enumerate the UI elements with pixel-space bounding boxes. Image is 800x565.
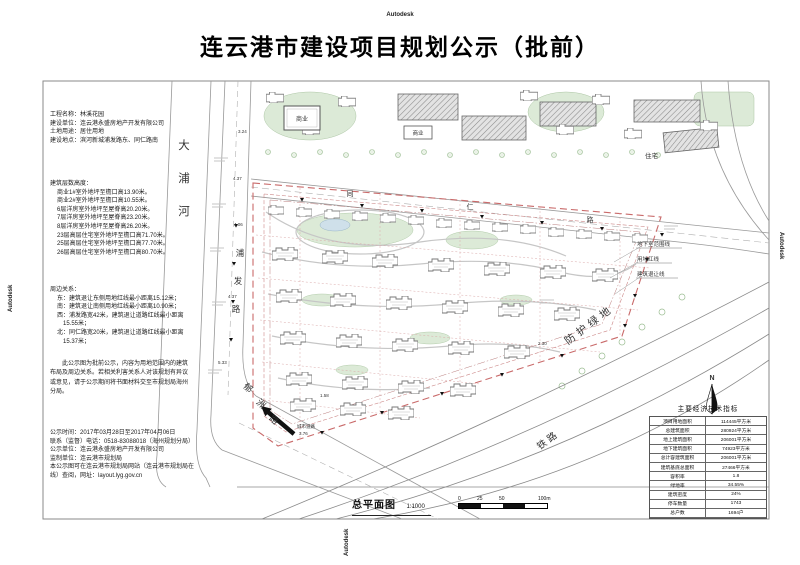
north-label: N <box>709 375 714 382</box>
location-line: 建设地点：滨河新城浦发路东、同仁路南 <box>50 137 186 146</box>
heights-heading: 建筑层数高度： <box>50 180 186 189</box>
relation-item: 北：同仁路宽20米，建筑退让道路红线最小距离15.37米； <box>50 329 190 346</box>
indicator-value: 206001平方米 <box>706 435 766 444</box>
indicator-value: 74923平方米 <box>706 445 766 454</box>
spot-elevation: 1.58 <box>320 393 329 398</box>
entrance-elevation: 3.76 <box>299 431 308 436</box>
publicity-line: 公示单位：连云港永盛房地产开发有限公司 <box>50 446 202 455</box>
plan-sheet: 大 浦 河 浦 发 路 郁 洲 路 同 仁 路 防护绿地 铁路 住宅 商业 商业… <box>0 0 800 565</box>
indicator-label: 绿地率 <box>650 481 706 490</box>
publicity-block: 公示时间：2017年03月28日至2017年04月06日 联系（监督）电话：05… <box>50 429 202 481</box>
indicator-value: 34.55% <box>706 481 766 490</box>
indicator-value: 114445平方米 <box>706 417 766 426</box>
height-item: 26层高层住宅室外地坪至檐口高80.70米。 <box>50 249 186 258</box>
builder-line: 建设单位：连云港永盛房地产开发有限公司 <box>50 120 186 129</box>
project-info-block: 工程名称：林溪花园 建设单位：连云港永盛房地产开发有限公司 土地用途：居住用地 … <box>50 111 186 145</box>
indicator-value: 206001平方米 <box>706 454 766 463</box>
indicators-table: 主要经济技术指标 项目用地面积 114445平方米 总建筑面积 280924平方… <box>649 403 767 519</box>
tongren-road-label-char: 路 <box>587 215 594 224</box>
indicators-table-title: 主要经济技术指标 <box>649 403 767 413</box>
residential-label: 住宅 <box>645 151 659 160</box>
scale-bar-labels: 0 25 50 100m <box>458 496 550 503</box>
autodesk-watermark-bottom: Autodesk <box>344 529 350 556</box>
indicator-value: 24% <box>706 491 766 500</box>
indicator-value: 27466平方米 <box>706 463 766 472</box>
spot-elevation: 5.33 <box>218 360 227 365</box>
scale-tick-50: 50 <box>499 496 505 502</box>
indicator-label: 项目用地面积 <box>650 417 706 426</box>
height-item: 商业1#室外地坪至檐口高13.90米。 <box>50 189 186 198</box>
indicator-value: 1743 <box>706 500 766 509</box>
drawing-name-block: 总平面图 1:1000 <box>352 495 431 516</box>
relation-item: 西：浦发路宽42米，建筑退让道路红线最小距离15.55米； <box>50 312 190 329</box>
height-item: 商业2#室外地坪至檐口高10.55米。 <box>50 197 186 206</box>
height-item: 25层高层住宅室外地坪至檐口高77.70米。 <box>50 240 186 249</box>
legend-basement-label: 地下室范围线 <box>637 240 671 248</box>
indicator-label: 总建筑面积 <box>650 426 706 435</box>
indicator-label: 地上建筑面积 <box>650 435 706 444</box>
indicator-label: 容积率 <box>650 472 706 481</box>
indicator-label: 总计容建筑面积 <box>650 454 706 463</box>
pufa-road-label-char: 路 <box>232 304 241 314</box>
legend-leaders <box>610 247 682 294</box>
indicator-value: 1694户 <box>706 509 766 518</box>
indicator-label: 建筑基底总面积 <box>650 463 706 472</box>
relation-item: 东：建筑退让东侧用地红线最小距离15.12米； <box>50 295 190 304</box>
indicator-value: 280924平方米 <box>706 426 766 435</box>
autodesk-watermark-top: Autodesk <box>0 12 800 18</box>
indicator-label: 停车数量 <box>650 500 706 509</box>
entrance-label: 城市道路 <box>297 423 315 430</box>
height-item: 7层洋房室外地坪至屋脊高23.20米。 <box>50 214 186 223</box>
spot-elevation: 4.06 <box>234 222 243 227</box>
spot-elevation: 4.37 <box>228 294 237 299</box>
pufa-road-label-char: 发 <box>234 276 243 286</box>
commercial-label: 商业 <box>412 129 424 137</box>
road-yuzhou <box>222 396 480 519</box>
drawing-name: 总平面图 <box>352 500 396 511</box>
pufa-road-label-char: 浦 <box>236 248 245 258</box>
spot-elevation: 3.24 <box>238 129 247 134</box>
tongren-road-label-char: 同 <box>347 190 354 198</box>
autodesk-watermark-right: Autodesk <box>778 232 784 259</box>
relations-heading: 周边关系： <box>50 286 190 295</box>
publicity-line: 监制单位：连云港市规划局 <box>50 455 202 464</box>
height-item: 8层洋房室外地坪至屋脊高26.20米。 <box>50 223 186 232</box>
project-name-line: 工程名称：林溪花园 <box>50 111 186 120</box>
autodesk-watermark-left: Autodesk <box>8 285 14 312</box>
publicity-line: 联系（监督）电话：0518-83088018（海州规划分局） <box>50 438 202 447</box>
tongren-road-label-char: 仁 <box>467 202 474 211</box>
road-pufa <box>211 81 256 450</box>
indicator-label: 建筑密度 <box>650 491 706 500</box>
publicity-line: 本公示图可在连云港市规划局网站（连云港市规划局在线）查阅，网址：layout.l… <box>50 463 202 480</box>
spot-elevation: 2.30 <box>538 341 547 346</box>
building-heights-block: 建筑层数高度： 商业1#室外地坪至檐口高13.90米。 商业2#室外地坪至檐口高… <box>50 180 186 257</box>
indicators-table-grid: 项目用地面积 114445平方米 总建筑面积 280924平方米 地上建筑面积 … <box>649 416 767 519</box>
commercial-label: 商业 <box>296 115 308 123</box>
notice-block: 此公示图为批前公示，内容为用地范围内的建筑布局及周边关系。若相关利害关系人对该规… <box>50 360 192 398</box>
scale-tick-0: 0 <box>458 496 461 502</box>
indicator-value: 1.8 <box>706 472 766 481</box>
relation-item: 南：建筑退让南侧用地红线最小距离10.90米； <box>50 303 190 312</box>
scale-tick-25: 25 <box>477 496 483 502</box>
map-labels: 大 浦 河 浦 发 路 郁 洲 路 同 仁 路 防护绿地 铁路 住宅 商业 商业… <box>178 115 714 452</box>
legend-setback-label: 建筑退让线 <box>637 270 665 278</box>
indicator-label: 总户数 <box>650 509 706 518</box>
height-item: 6层洋房室外地坪至屋脊高20.20米。 <box>50 206 186 215</box>
land-use-line: 土地用途：居住用地 <box>50 128 186 137</box>
drawing-scale: 1:1000 <box>406 504 424 510</box>
publicity-line: 公示时间：2017年03月28日至2017年04月06日 <box>50 429 202 438</box>
page-title: 连云港市建设项目规划公示（批前） <box>0 28 800 62</box>
scale-bar-segments <box>458 503 548 509</box>
legend-redline-label: 用地红线 <box>637 255 660 263</box>
spot-elevation: 4.37 <box>233 176 242 181</box>
setback-relations-block: 周边关系： 东：建筑退让东侧用地红线最小距离15.12米； 南：建筑退让南侧用地… <box>50 286 190 346</box>
indicator-label: 地下建筑面积 <box>650 445 706 454</box>
height-item: 23层高层住宅室外地坪至檐口高71.70米。 <box>50 232 186 241</box>
scale-bar: 0 25 50 100m <box>458 496 550 509</box>
scale-tick-100: 100m <box>538 496 551 502</box>
